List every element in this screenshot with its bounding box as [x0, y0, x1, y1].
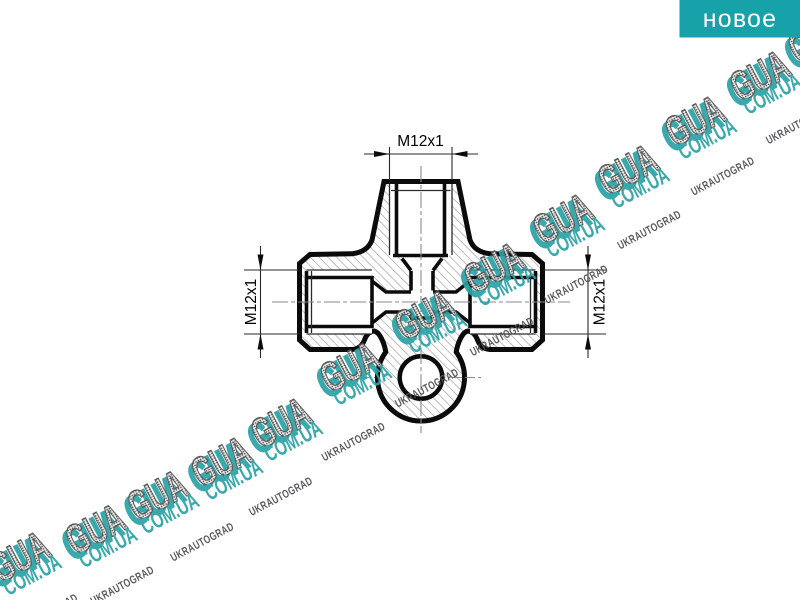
svg-text:M12x1: M12x1 [397, 133, 444, 150]
svg-text:новое: новое [703, 5, 778, 33]
svg-text:M12x1: M12x1 [243, 279, 260, 326]
svg-text:M12x1: M12x1 [592, 279, 609, 326]
